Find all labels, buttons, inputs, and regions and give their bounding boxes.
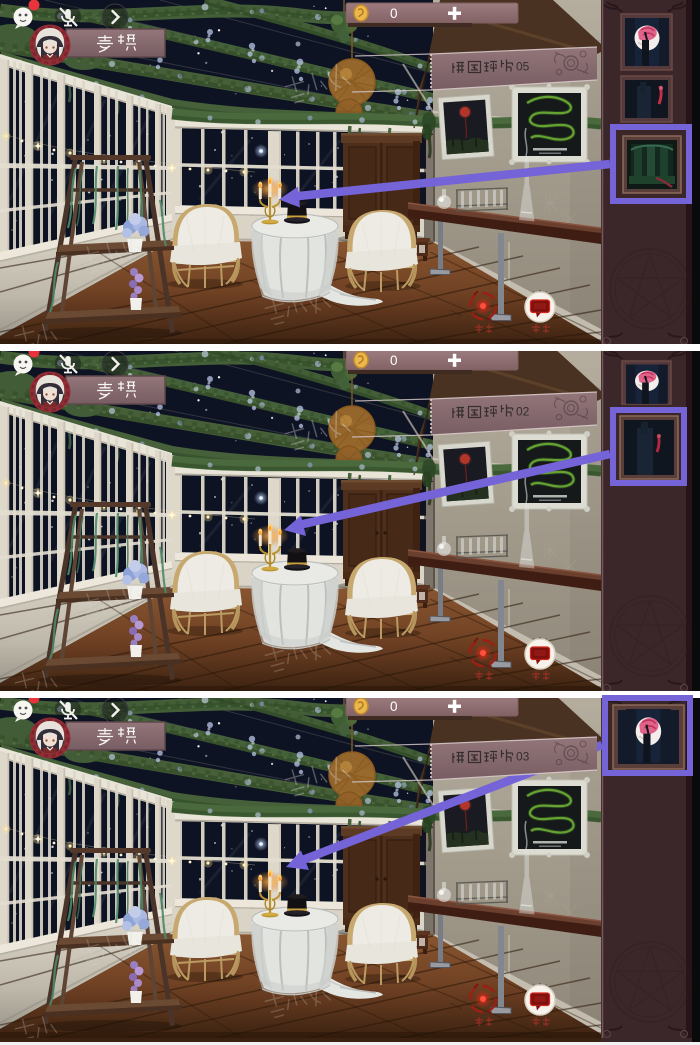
svg-text:03: 03 [516,750,530,764]
svg-text:02: 02 [516,405,530,419]
svg-text:05: 05 [516,60,530,74]
